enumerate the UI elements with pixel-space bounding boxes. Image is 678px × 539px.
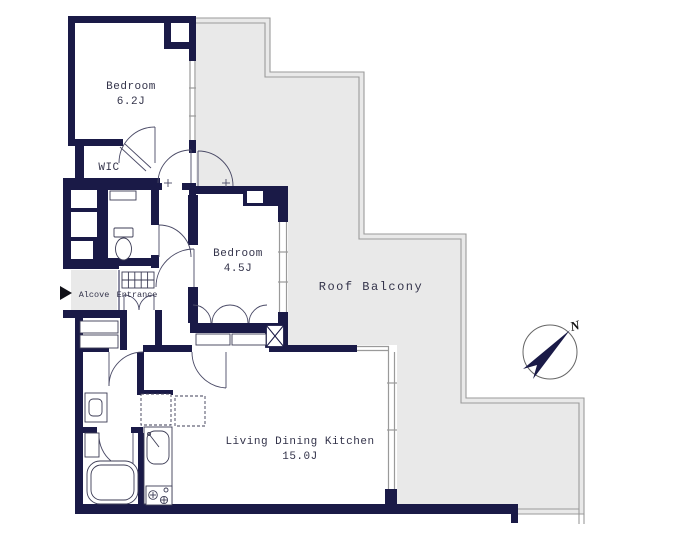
toilet-shelf: [110, 191, 136, 200]
cupboard: [196, 334, 230, 345]
cupboard: [232, 334, 266, 345]
compass-needle: [523, 330, 570, 379]
ldk-label: Living Dining Kitchen: [225, 436, 374, 448]
entrance-step-grid: [122, 272, 154, 288]
appliance-space: [175, 396, 205, 426]
shoe-cabinet: [80, 335, 118, 348]
meter-box: [71, 212, 97, 237]
meter-box: [71, 241, 93, 259]
entrance-arrow-icon: [60, 286, 72, 300]
entrance-label: Entrance: [117, 290, 158, 300]
toilet-tank: [114, 228, 133, 237]
toilet-bowl: [116, 238, 132, 260]
roof-balcony-label: Roof Balcony: [319, 280, 423, 294]
washer-space: [85, 433, 99, 457]
wic-label: WIC: [98, 162, 119, 174]
bedroom1-size: 6.2J: [117, 96, 145, 108]
vanity-basin: [89, 399, 102, 416]
bedroom2-size: 4.5J: [224, 263, 252, 275]
bedroom1-label: Bedroom: [106, 81, 156, 93]
floorplan-page: N Bedroom 6.2J WIC Bedroom 4.5J Roof Bal…: [0, 0, 678, 539]
alcove-label: Alcove: [79, 290, 110, 300]
compass-north-label: N: [567, 317, 582, 334]
bedroom2-label: Bedroom: [213, 248, 263, 260]
floorplan-drawing: N Bedroom 6.2J WIC Bedroom 4.5J Roof Bal…: [0, 0, 678, 539]
ldk-size: 15.0J: [282, 451, 318, 463]
bathtub-inner: [91, 465, 134, 500]
shoe-cabinet: [80, 321, 118, 333]
refrigerator-space: [141, 394, 171, 425]
duct-box: [247, 191, 263, 203]
compass-icon: N: [523, 317, 582, 379]
pipe-shaft-box: [71, 190, 97, 208]
